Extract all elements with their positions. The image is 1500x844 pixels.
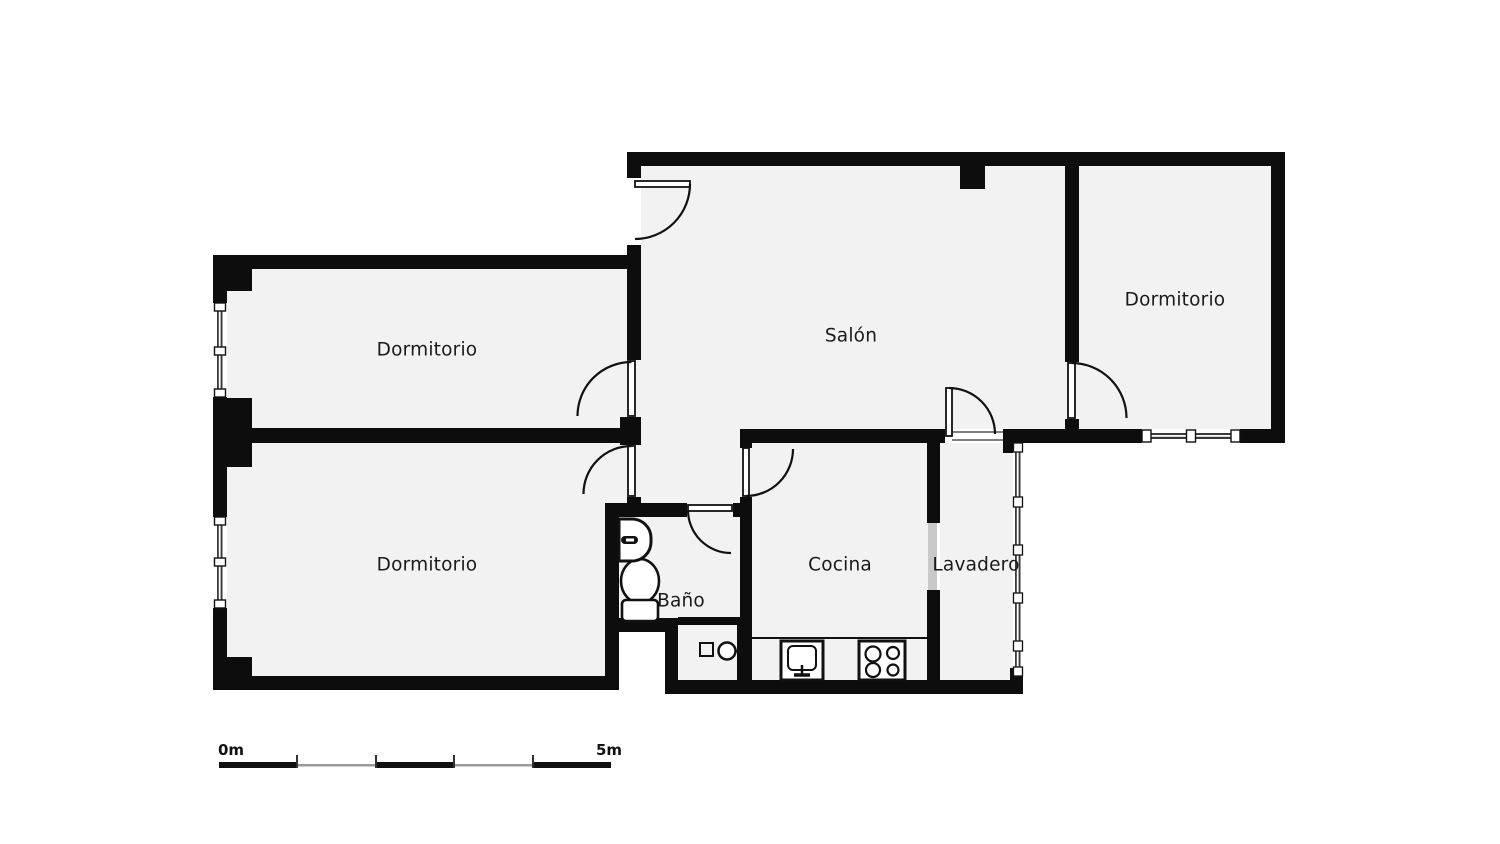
room-label-lavadero: Lavadero: [932, 555, 1019, 576]
scale-end-label: 5m: [596, 741, 622, 759]
room-label-bano: Baño: [657, 591, 705, 612]
window-dormitorio-bottom-left: [213, 517, 227, 608]
room-label-cocina: Cocina: [808, 555, 872, 576]
chimney-stub: [960, 166, 985, 189]
room-label-dormitorio-top-left: Dormitorio: [377, 340, 478, 361]
toilet-icon: [621, 559, 659, 621]
floor-plan-page: Dormitorio Dormitorio Salón Dormitorio B…: [0, 0, 1500, 844]
floor-salon: [641, 166, 1065, 429]
bathroom-sink-icon: [619, 519, 651, 561]
room-label-dormitorio-right: Dormitorio: [1125, 290, 1226, 311]
floor-plan-drawing: [0, 0, 1500, 844]
stove-burners-icon: [859, 641, 905, 680]
scale-start-label: 0m: [218, 741, 244, 759]
room-label-dormitorio-bottom-left: Dormitorio: [377, 555, 478, 576]
window-dormitorio-right: [1142, 429, 1240, 443]
kitchen-sink-icon: [781, 641, 823, 680]
window-dormitorio-top-left: [213, 303, 227, 397]
room-label-salon: Salón: [825, 326, 877, 347]
scale-bar: [219, 755, 611, 768]
